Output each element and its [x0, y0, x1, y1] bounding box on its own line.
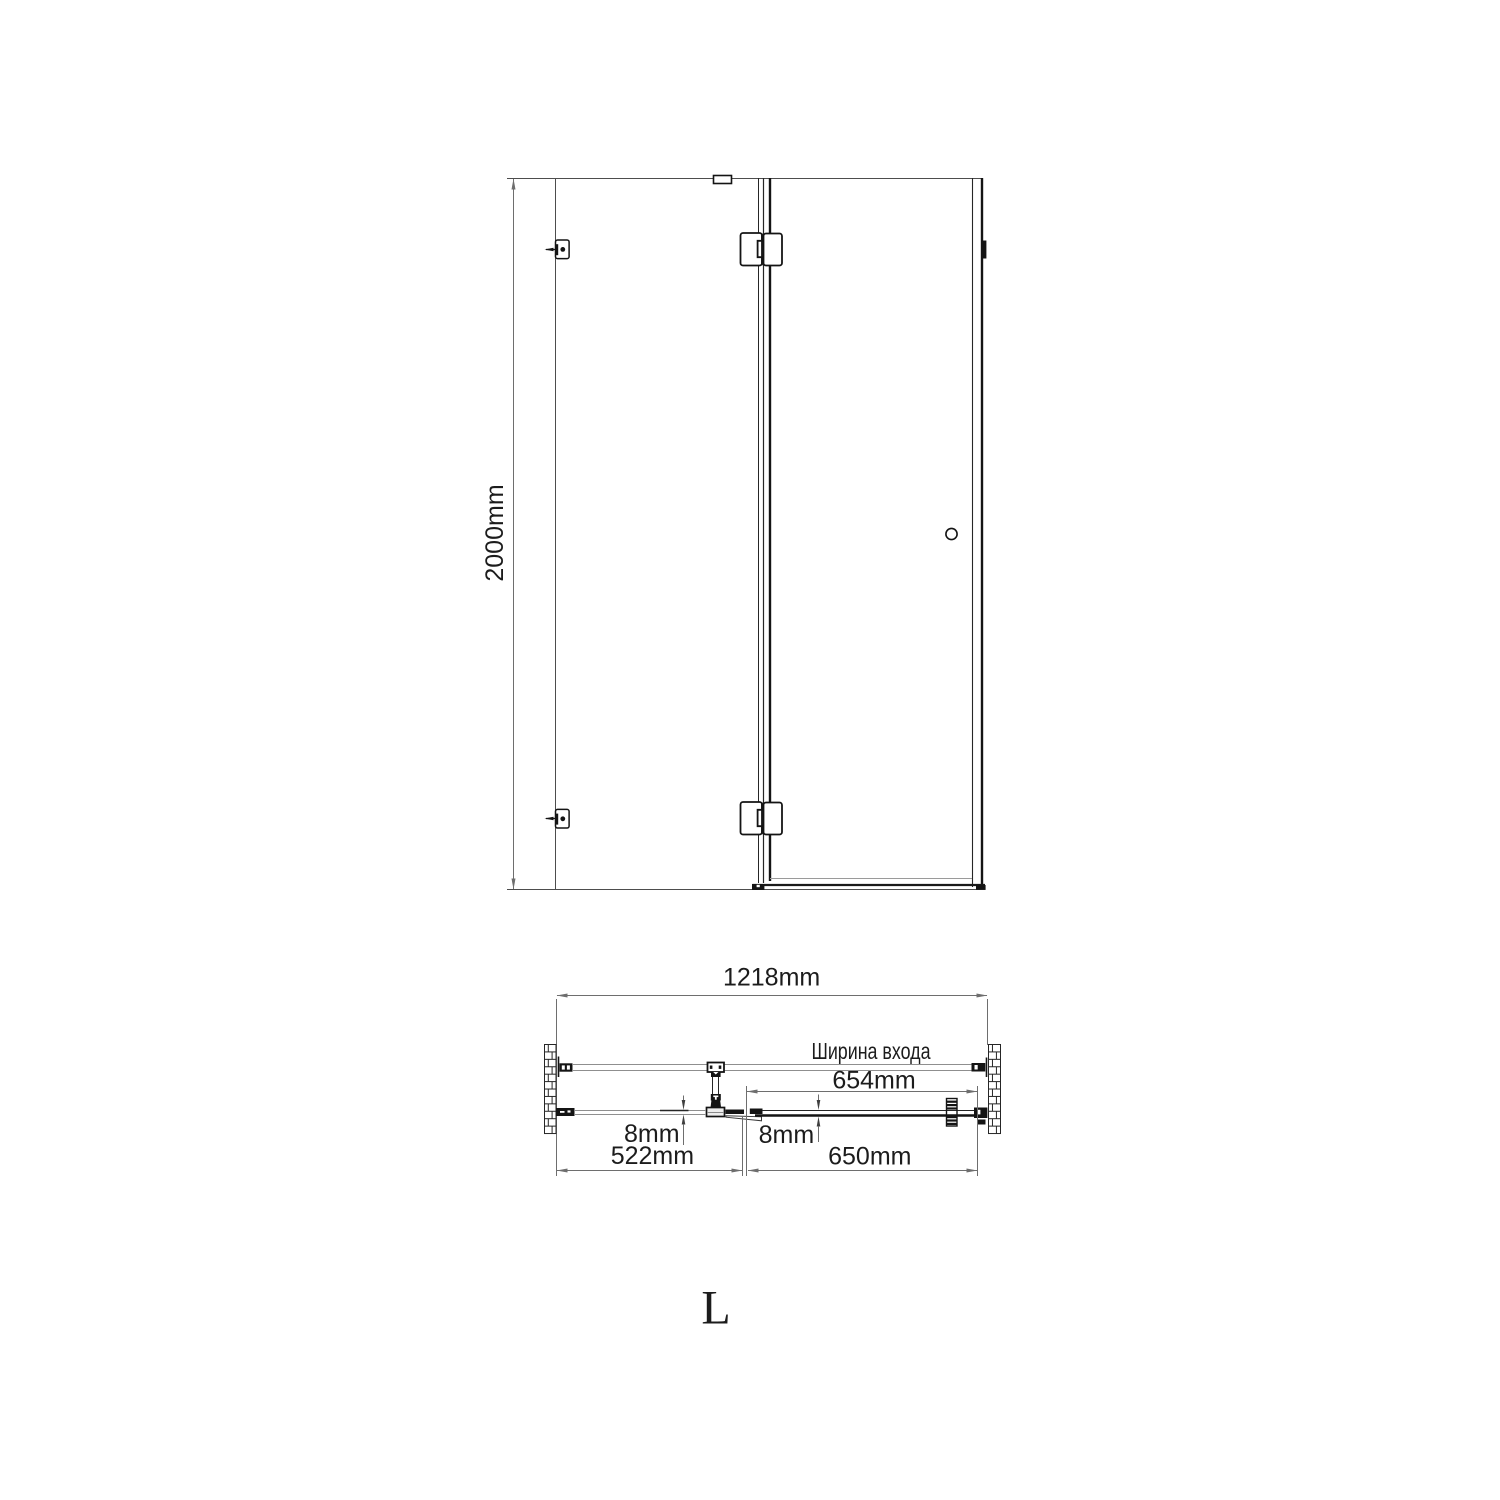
svg-text:654mm: 654mm	[832, 1067, 915, 1095]
svg-text:1218mm: 1218mm	[723, 964, 820, 992]
svg-text:522mm: 522mm	[611, 1142, 694, 1170]
svg-text:8mm: 8mm	[759, 1121, 815, 1149]
svg-text:650mm: 650mm	[828, 1142, 911, 1170]
svg-text:2000mm: 2000mm	[481, 484, 509, 581]
svg-text:L: L	[701, 1282, 730, 1335]
svg-text:Ширина входа: Ширина входа	[811, 1039, 930, 1065]
